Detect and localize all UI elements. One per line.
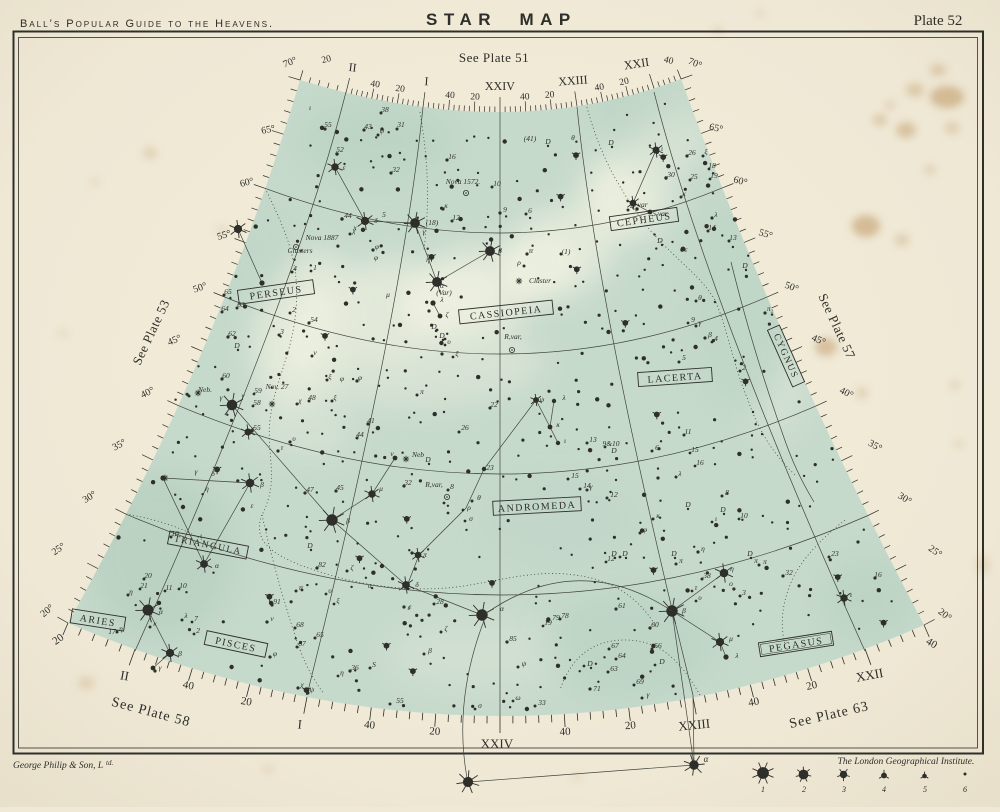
svg-text:9: 9: [503, 205, 507, 214]
svg-text:Nova 1572.: Nova 1572.: [445, 177, 481, 186]
svg-text:υ: υ: [292, 434, 296, 443]
svg-text:θ: θ: [477, 493, 481, 502]
svg-text:D: D: [424, 455, 431, 464]
svg-text:σ: σ: [469, 514, 473, 523]
svg-text:7: 7: [194, 614, 198, 623]
svg-text:δ: δ: [211, 469, 215, 478]
svg-text:π: π: [423, 550, 427, 559]
svg-text:β: β: [427, 646, 432, 655]
svg-text:6: 6: [963, 785, 967, 794]
svg-text:21: 21: [140, 581, 148, 590]
svg-text:64: 64: [618, 651, 626, 660]
svg-text:3: 3: [841, 785, 846, 794]
svg-text:13: 13: [589, 435, 597, 444]
svg-text:19: 19: [710, 171, 718, 180]
svg-text:β: β: [707, 330, 712, 339]
svg-text:11: 11: [685, 427, 692, 436]
svg-text:9: 9: [691, 315, 695, 324]
svg-text:ε: ε: [685, 245, 688, 254]
svg-text:8: 8: [450, 482, 454, 491]
svg-text:β: β: [497, 246, 502, 255]
svg-text:5: 5: [923, 785, 927, 794]
svg-text:65: 65: [316, 630, 324, 639]
svg-text:D: D: [610, 549, 617, 558]
svg-text:μ: μ: [379, 484, 383, 493]
svg-text:4: 4: [714, 334, 718, 343]
svg-text:δ: δ: [374, 216, 378, 225]
svg-text:Nov. 27: Nov. 27: [265, 382, 289, 391]
svg-text:χ: χ: [299, 680, 304, 689]
svg-text:α: α: [704, 754, 709, 764]
svg-text:6: 6: [528, 206, 532, 215]
svg-text:D: D: [656, 236, 663, 245]
svg-text:π: π: [420, 387, 424, 396]
svg-text:XXIV: XXIV: [485, 79, 515, 93]
svg-text:θ: θ: [571, 133, 575, 142]
svg-text:D: D: [719, 505, 726, 514]
svg-text:5: 5: [382, 210, 386, 219]
svg-text:See Plate 51: See Plate 51: [459, 50, 529, 65]
svg-text:47: 47: [306, 485, 314, 494]
svg-text:δ var: δ var: [632, 200, 647, 209]
svg-text:φ: φ: [643, 525, 647, 534]
svg-text:μ: μ: [386, 290, 390, 299]
svg-text:Plate 52: Plate 52: [914, 13, 963, 29]
svg-text:(18): (18): [426, 218, 439, 227]
svg-text:x: x: [352, 223, 357, 232]
svg-text:XXIV: XXIV: [481, 736, 514, 751]
svg-text:β: β: [177, 649, 182, 658]
svg-text:67: 67: [298, 639, 306, 648]
svg-text:32: 32: [784, 568, 793, 577]
svg-text:ε: ε: [251, 501, 254, 510]
svg-text:The London Geographical Instit: The London Geographical Institute.: [838, 757, 975, 767]
svg-text:36: 36: [350, 663, 359, 672]
svg-text:2: 2: [742, 363, 746, 372]
svg-text:32: 32: [391, 165, 400, 174]
svg-text:XXIII: XXIII: [678, 716, 711, 734]
svg-text:61: 61: [618, 601, 626, 610]
svg-text:XXIII: XXIII: [558, 72, 588, 88]
svg-text:George Philip & Son, L: George Philip & Son, L: [13, 761, 103, 771]
svg-text:15: 15: [571, 471, 579, 480]
svg-text:φ: φ: [273, 649, 277, 658]
svg-text:R,var,: R,var,: [424, 480, 443, 489]
svg-text:δ: δ: [415, 580, 419, 589]
svg-text:58: 58: [253, 398, 261, 407]
svg-text:8: 8: [725, 488, 729, 497]
svg-text:η: η: [426, 255, 430, 264]
svg-text:Cluster: Cluster: [529, 276, 551, 285]
svg-text:(Var): (Var): [436, 288, 452, 297]
svg-text:D: D: [670, 549, 677, 558]
svg-text:68: 68: [296, 620, 304, 629]
svg-text:11: 11: [166, 583, 173, 592]
svg-text:S: S: [372, 660, 376, 669]
svg-text:β: β: [681, 606, 686, 615]
svg-text:2: 2: [802, 785, 806, 794]
svg-text:16: 16: [448, 152, 456, 161]
svg-text:33: 33: [537, 698, 546, 707]
svg-text:β: β: [345, 516, 350, 525]
svg-text:91: 91: [273, 597, 281, 606]
svg-text:η: η: [730, 564, 734, 573]
svg-text:τ: τ: [281, 443, 284, 452]
svg-text:π₂: π₂: [767, 304, 774, 313]
svg-text:55: 55: [253, 423, 261, 432]
svg-text:(41): (41): [524, 134, 537, 143]
svg-text:D: D: [684, 500, 691, 509]
svg-text:40: 40: [364, 719, 377, 732]
svg-text:ψ: ψ: [522, 659, 527, 668]
svg-text:20: 20: [545, 90, 555, 101]
svg-text:BALL’S POPULAR GUIDE TO THE HE: BALL’S POPULAR GUIDE TO THE HEAVENS.: [20, 18, 274, 30]
svg-text:4: 4: [293, 264, 297, 273]
svg-text:26: 26: [688, 148, 696, 157]
svg-text:π: π: [763, 557, 767, 566]
svg-text:τ: τ: [529, 246, 532, 255]
svg-text:38: 38: [702, 571, 711, 580]
svg-text:ι: ι: [715, 514, 717, 523]
svg-text:40: 40: [559, 726, 571, 738]
svg-text:23: 23: [486, 463, 494, 472]
svg-text:ι: ι: [309, 103, 311, 112]
svg-text:σ: σ: [478, 701, 482, 710]
svg-text:1: 1: [761, 785, 765, 794]
svg-text:ω: ω: [515, 693, 520, 702]
svg-text:π: π: [754, 556, 758, 565]
svg-text:ρ: ρ: [466, 503, 471, 512]
svg-text:20: 20: [470, 92, 480, 102]
svg-text:κ: κ: [682, 189, 686, 198]
svg-text:υ: υ: [447, 337, 451, 346]
svg-text:20: 20: [429, 725, 441, 738]
svg-text:D: D: [306, 541, 313, 550]
svg-text:6: 6: [655, 443, 659, 452]
svg-text:55: 55: [396, 696, 404, 705]
svg-text:59: 59: [254, 386, 262, 395]
svg-text:1: 1: [313, 263, 317, 272]
svg-text:78: 78: [561, 611, 569, 620]
svg-text:ρ: ρ: [516, 258, 521, 267]
svg-text:15: 15: [691, 445, 699, 454]
svg-text:85: 85: [509, 634, 517, 643]
svg-text:ι: ι: [564, 436, 566, 445]
svg-text:Clusters: Clusters: [287, 246, 312, 255]
svg-text:φ: φ: [375, 242, 379, 251]
svg-text:60: 60: [651, 620, 659, 629]
svg-text:td.: td.: [106, 759, 113, 767]
svg-text:69: 69: [636, 677, 644, 686]
svg-text:η: η: [340, 668, 344, 677]
svg-text:2: 2: [292, 305, 296, 314]
svg-text:ε: ε: [409, 602, 412, 611]
svg-text:20: 20: [624, 719, 637, 732]
svg-text:D: D: [607, 138, 614, 147]
svg-text:44: 44: [344, 211, 352, 220]
svg-text:D: D: [741, 261, 748, 270]
svg-text:τ: τ: [695, 583, 698, 592]
svg-text:54: 54: [310, 315, 318, 324]
svg-text:56: 56: [654, 641, 662, 650]
svg-text:D: D: [233, 341, 240, 350]
svg-text:φ: φ: [374, 253, 378, 262]
svg-text:ε: ε: [343, 163, 346, 172]
svg-text:40: 40: [370, 79, 381, 90]
svg-text:26: 26: [461, 423, 469, 432]
svg-text:STAR MAP: STAR MAP: [426, 10, 577, 29]
svg-text:Nova 1887: Nova 1887: [305, 233, 339, 242]
svg-text:40: 40: [445, 91, 455, 102]
svg-text:ψ: ψ: [310, 685, 315, 694]
svg-text:D: D: [746, 549, 753, 558]
svg-text:3: 3: [741, 588, 746, 597]
svg-text:(1): (1): [562, 247, 571, 256]
svg-text:R,var,: R,var,: [503, 332, 522, 341]
svg-text:5: 5: [682, 353, 686, 362]
svg-text:2: 2: [196, 626, 200, 635]
svg-text:67: 67: [611, 641, 619, 650]
svg-text:23: 23: [831, 549, 839, 558]
svg-text:ψ: ψ: [540, 395, 545, 404]
svg-text:D: D: [586, 659, 593, 668]
svg-text:28: 28: [436, 597, 444, 606]
svg-text:Neb: Neb: [411, 450, 424, 459]
svg-text:υ: υ: [698, 593, 702, 602]
svg-text:10: 10: [179, 581, 187, 590]
svg-text:η: η: [701, 544, 705, 553]
svg-text:η: η: [205, 484, 209, 493]
svg-text:20: 20: [395, 84, 406, 95]
svg-text:κ: κ: [556, 420, 560, 429]
svg-text:40: 40: [520, 92, 530, 102]
svg-text:63: 63: [610, 664, 618, 673]
svg-text:ο: ο: [729, 579, 733, 588]
svg-text:D: D: [658, 657, 665, 666]
svg-text:κ: κ: [656, 511, 660, 520]
svg-text:16: 16: [696, 458, 704, 467]
svg-text:82: 82: [318, 560, 326, 569]
svg-text:κ: κ: [153, 619, 157, 628]
svg-text:4: 4: [882, 785, 886, 794]
svg-text:φ: φ: [340, 374, 344, 383]
svg-text:ψ: ψ: [380, 126, 385, 135]
svg-text:π: π: [679, 556, 683, 565]
svg-text:ι: ι: [661, 144, 663, 153]
svg-text:II: II: [348, 60, 358, 75]
svg-text:η: η: [129, 587, 133, 596]
svg-text:κ: κ: [444, 201, 448, 210]
svg-text:υ: υ: [328, 586, 332, 595]
svg-text:θ: θ: [698, 293, 702, 302]
svg-text:η: η: [119, 624, 123, 633]
svg-text:10: 10: [493, 179, 501, 188]
svg-text:71: 71: [593, 684, 601, 693]
svg-text:D: D: [621, 549, 628, 558]
svg-text:ι: ι: [850, 590, 852, 599]
svg-text:D: D: [544, 137, 551, 146]
svg-text:μ: μ: [729, 634, 733, 643]
svg-text:40: 40: [594, 82, 605, 93]
svg-text:D: D: [610, 446, 617, 455]
svg-text:10: 10: [740, 511, 748, 520]
svg-text:79: 79: [552, 613, 560, 622]
svg-text:12: 12: [610, 490, 618, 499]
svg-text:β: β: [259, 480, 264, 489]
